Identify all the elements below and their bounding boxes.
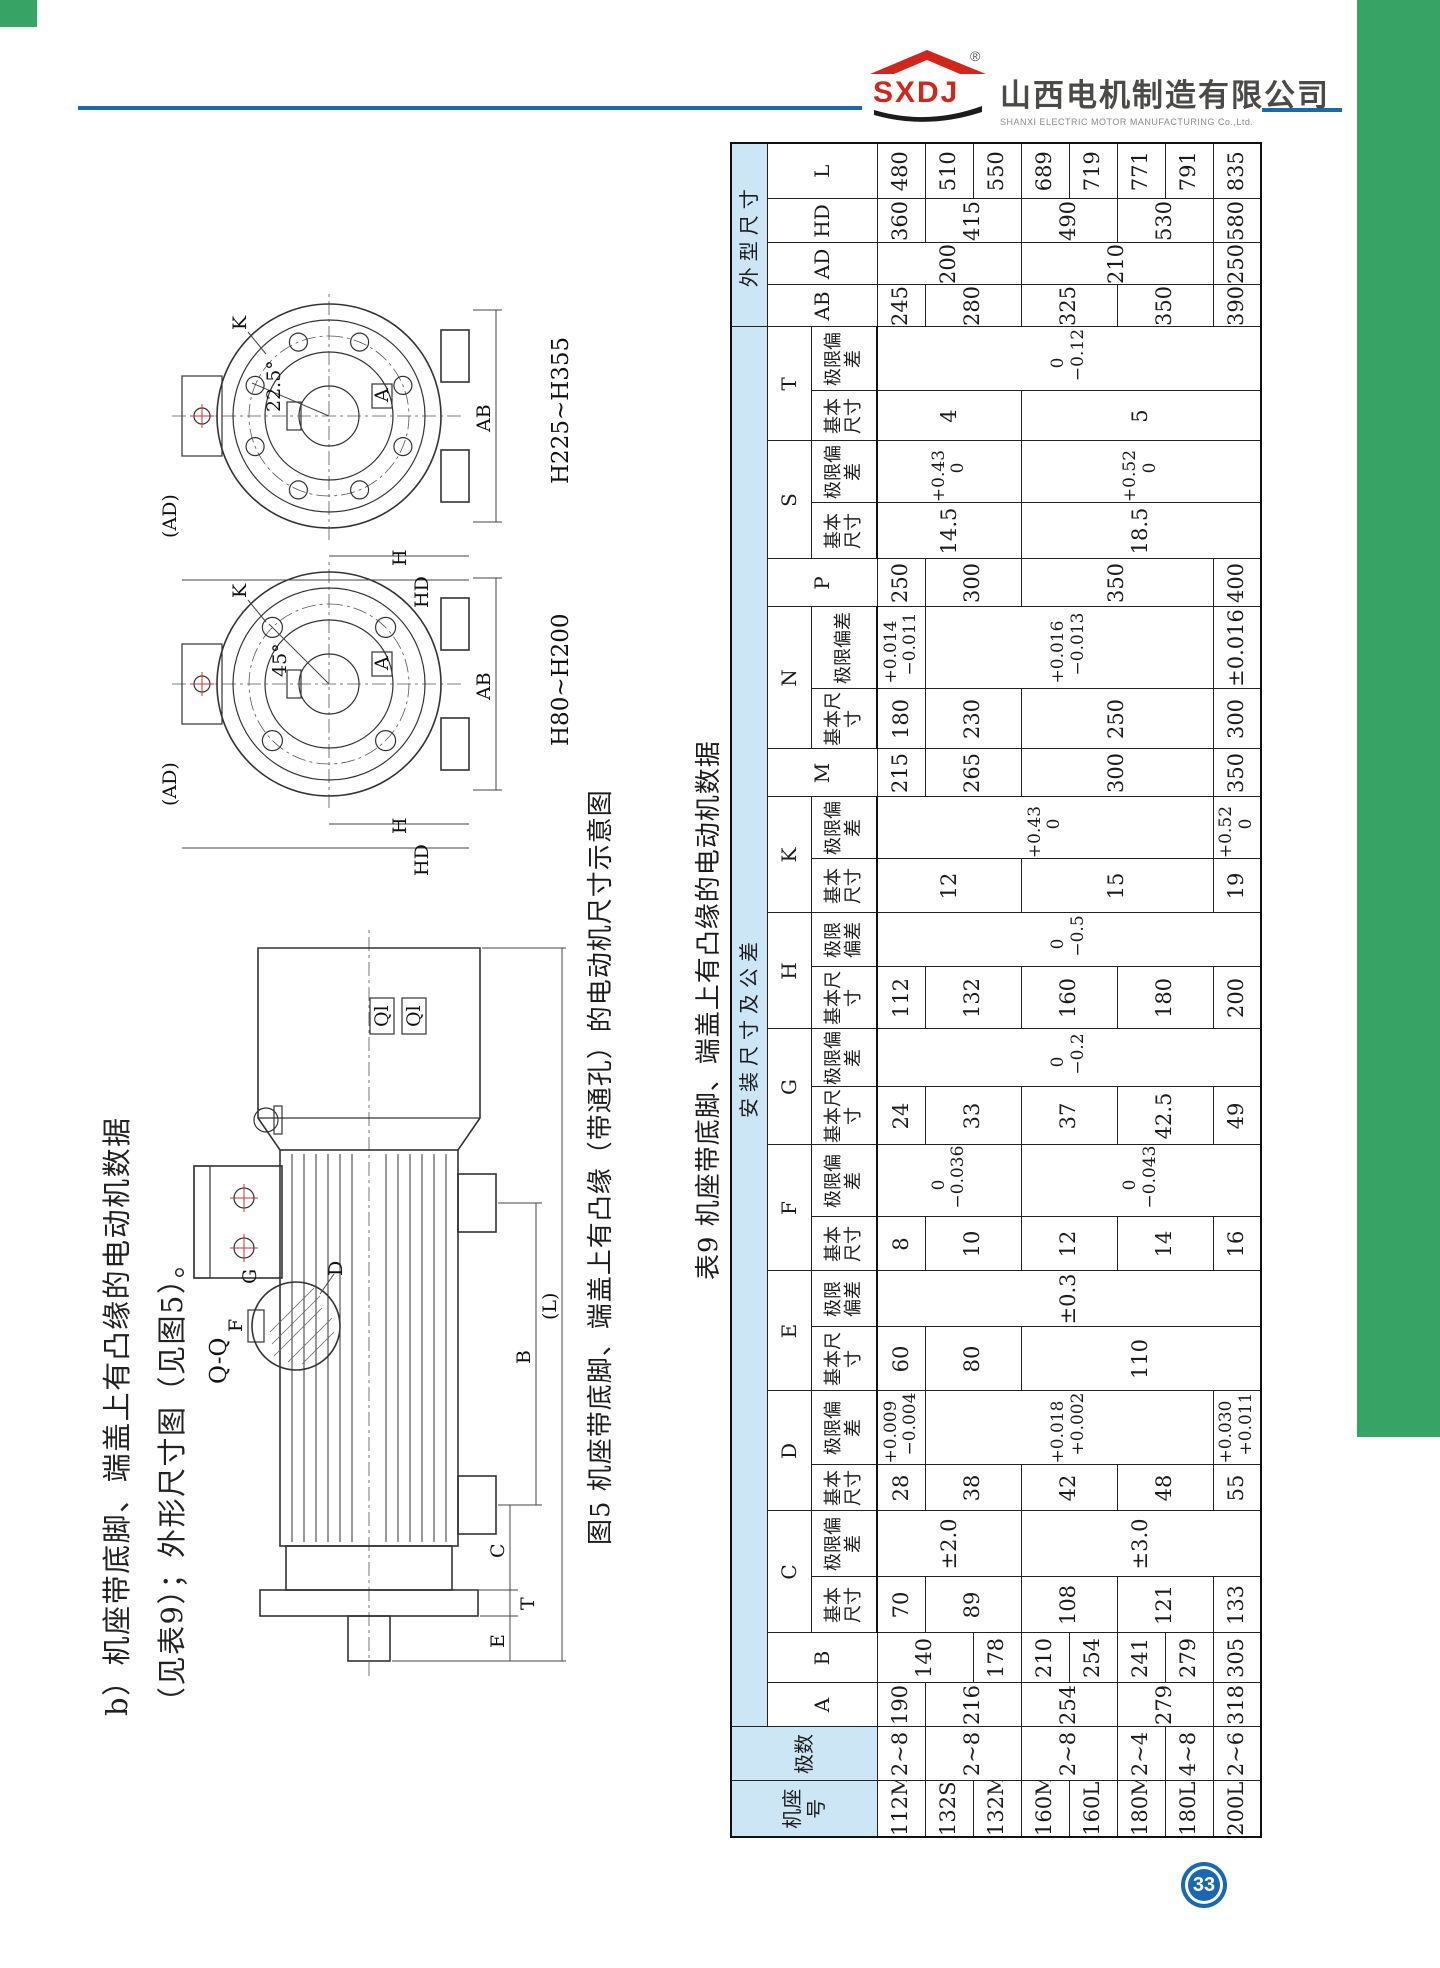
subheader-deviation-G: 极限偏差	[811, 1029, 877, 1087]
col-header-D: D	[767, 1391, 811, 1511]
col-header-F: F	[767, 1145, 811, 1271]
table-cell: 250	[1021, 689, 1213, 749]
terminal-box	[194, 1166, 282, 1278]
table-cell: 2~6	[1213, 1727, 1261, 1781]
table-cell: 55	[1213, 1465, 1261, 1511]
label-h-large: H	[389, 549, 411, 566]
table-cell: 0−0.12	[877, 327, 1261, 391]
table-cell: ±2.0	[877, 1511, 1021, 1577]
table-cell: +0.030+0.011	[1213, 1391, 1261, 1465]
subheader-basic-G: 基本尺寸	[811, 1087, 877, 1145]
table-cell: 318	[1213, 1683, 1261, 1727]
label-ad-large: (AD)	[159, 494, 181, 538]
col-header-S: S	[767, 441, 811, 559]
table-cell: 89	[925, 1577, 1021, 1633]
table-cell: 24	[877, 1087, 925, 1145]
label-l: (L)	[539, 1293, 561, 1320]
table-cell: 400	[1213, 559, 1261, 607]
table-cell: 279	[1165, 1633, 1213, 1683]
table-cell: 108	[1021, 1577, 1117, 1633]
label-ab-large: AB	[473, 404, 495, 433]
table-cell: 180	[877, 689, 925, 749]
label-k-large: K	[229, 315, 251, 330]
table-cell: 305	[1213, 1633, 1261, 1683]
table-cell: 360	[877, 199, 925, 243]
table-cell: 2~8	[877, 1727, 925, 1781]
table-cell: 300	[1213, 689, 1261, 749]
table-cell: 510	[925, 143, 973, 199]
table-cell: 530	[1117, 199, 1213, 243]
col-header-K: K	[767, 797, 811, 913]
table-cell: +0.009−0.004	[877, 1391, 925, 1465]
table-cell: 550	[973, 143, 1021, 199]
table-cell: 350	[1213, 749, 1261, 797]
table-cell: 140	[877, 1633, 973, 1683]
table-cell: 689	[1021, 143, 1069, 199]
subheader-basic-C: 基本尺寸	[811, 1577, 877, 1633]
rotated-content: b）机座带底脚、端盖上有凸缘的电动机数据（见表9）；外形尺寸图（见图5）。	[88, 116, 1338, 1856]
subheader-deviation-N: 极限偏差	[811, 607, 877, 689]
label-g: G	[239, 1269, 261, 1284]
col-header-B: B	[767, 1633, 877, 1683]
table-cell: +0.018+0.002	[925, 1391, 1213, 1465]
label-ad-small: (AD)	[159, 762, 181, 806]
label-ab-small: AB	[473, 672, 495, 701]
table-cell: 180L	[1165, 1781, 1213, 1837]
table-cell: ±0.016	[1213, 607, 1261, 689]
table-cell: 133	[1213, 1577, 1261, 1633]
table-cell: 2~4	[1117, 1727, 1165, 1781]
table-cell: ±0.3	[877, 1271, 1261, 1327]
col-header-T: T	[767, 327, 811, 441]
subheader-deviation-D: 极限偏差	[811, 1391, 877, 1465]
table-cell: 42.5	[1117, 1087, 1213, 1145]
page-number-badge: 33	[1181, 1862, 1227, 1908]
table-cell: 254	[1069, 1633, 1117, 1683]
col-header-HD: HD	[767, 199, 877, 243]
table-cell: 415	[925, 199, 1021, 243]
registered-mark: ®	[970, 48, 980, 64]
label-d: D	[325, 1261, 347, 1276]
table-cell: 350	[1117, 285, 1213, 327]
figure5-caption: 图5 机座带底脚、端盖上有凸缘（带通孔）的电动机尺寸示意图	[580, 789, 617, 1545]
motor-front-view-small: 45° (AD) K A H HD AB H80~H200	[159, 560, 574, 876]
label-b: B	[513, 1350, 535, 1364]
table-cell: 132	[925, 967, 1021, 1029]
table9-title: 表9 机座带底脚、端盖上有凸缘的电动机数据	[688, 740, 725, 1280]
subheader-deviation-C: 极限偏差	[811, 1511, 877, 1577]
table-cell: 230	[925, 689, 1021, 749]
table-cell: 4~8	[1165, 1727, 1213, 1781]
green-corner-block	[0, 0, 37, 27]
table-cell: 190	[877, 1683, 925, 1727]
label-h-small: H	[389, 817, 411, 834]
label-angle-225: 22.5°	[263, 360, 285, 412]
catalog-page: SXDJ ® 山西电机制造有限公司 SHANXI ELECTRIC MOTOR …	[0, 0, 1440, 1968]
table-cell: 210	[1021, 1633, 1069, 1683]
front-view-large-range: H225~H355	[548, 337, 574, 484]
subheader-deviation-F: 极限偏差	[811, 1145, 877, 1217]
label-a-small: A	[371, 656, 393, 671]
subheader-deviation-T: 极限偏差	[811, 327, 877, 391]
table-cell: 160M	[1021, 1781, 1069, 1837]
label-f: F	[225, 1319, 247, 1332]
table-cell: 719	[1069, 143, 1117, 199]
table-cell: +0.016−0.013	[925, 607, 1213, 689]
label-hd-small: HD	[411, 844, 433, 876]
table-cell: 14	[1117, 1217, 1213, 1271]
table-cell: 216	[925, 1683, 1021, 1727]
table-cell: 2~8	[1021, 1727, 1117, 1781]
table-cell: 5	[1021, 391, 1261, 441]
page-number: 33	[1188, 1869, 1220, 1901]
col-header-P: P	[767, 559, 877, 607]
table-cell: 10	[925, 1217, 1021, 1271]
label-k-small: K	[229, 583, 251, 598]
group-header-overall: 外型尺寸	[731, 143, 767, 327]
table-cell: 132M	[973, 1781, 1021, 1837]
col-header-AB: AB	[767, 285, 877, 327]
table-cell: 250	[1213, 243, 1261, 285]
front-view-small-range: H80~H200	[548, 613, 574, 746]
label-c: C	[487, 1543, 509, 1558]
table-cell: 12	[1021, 1217, 1117, 1271]
table-cell: 48	[1117, 1465, 1213, 1511]
col-header-H: H	[767, 913, 811, 1029]
table-cell: 771	[1117, 143, 1165, 199]
table-cell: 200	[877, 243, 1021, 285]
subheader-basic-H: 基本尺寸	[811, 967, 877, 1029]
table-cell: 280	[925, 285, 1021, 327]
subheader-deviation-S: 极限偏差	[811, 441, 877, 503]
label-e: E	[487, 1634, 509, 1648]
col-header-L: L	[767, 143, 877, 199]
motor-side-view: Ql Ql E T C B (L)	[194, 928, 566, 1676]
table9: 机座号极数安装尺寸及公差外型尺寸ABCDEFGHKMNPSTABADHDL基本尺…	[730, 142, 1262, 1838]
subheader-deviation-H: 极限偏差	[811, 913, 877, 967]
table-cell: 390	[1213, 285, 1261, 327]
table-cell: 112M	[877, 1781, 925, 1837]
table-cell: +0.014−0.011	[877, 607, 925, 689]
table-cell: 8	[877, 1217, 925, 1271]
subheader-deviation-E: 极限偏差	[811, 1271, 877, 1327]
table-cell: 350	[1021, 559, 1213, 607]
table-cell: 160L	[1069, 1781, 1117, 1837]
company-name-cn: 山西电机制造有限公司	[1000, 70, 1330, 115]
col-header-poles: 极数	[731, 1727, 877, 1781]
table-cell: 121	[1117, 1577, 1213, 1633]
table-cell: 245	[877, 285, 925, 327]
label-ql-2: Ql	[403, 1005, 425, 1027]
table-cell: +0.520	[1021, 441, 1261, 503]
table-cell: 200L	[1213, 1781, 1261, 1837]
table-cell: 14.5	[877, 503, 1021, 559]
subheader-deviation-K: 极限偏差	[811, 797, 877, 859]
table-cell: 215	[877, 749, 925, 797]
table-cell: 250	[877, 559, 925, 607]
header-rule-left	[78, 106, 862, 110]
table-cell: +0.430	[877, 797, 1213, 859]
table-cell: 0−0.2	[877, 1029, 1261, 1087]
table-cell: 15	[1021, 859, 1213, 913]
table-cell: 4	[877, 391, 1021, 441]
table-cell: 180M	[1117, 1781, 1165, 1837]
table-cell: 38	[925, 1465, 1021, 1511]
table-cell: 0−0.5	[877, 913, 1261, 967]
figure5-drawings: Ql Ql E T C B (L) Q-Q	[144, 256, 574, 1676]
table-cell: 112	[877, 967, 925, 1029]
subheader-basic-S: 基本尺寸	[811, 503, 877, 559]
subheader-basic-N: 基本尺寸	[811, 689, 877, 749]
table-cell: 300	[1021, 749, 1213, 797]
table-cell: 70	[877, 1577, 925, 1633]
table-cell: 200	[1213, 967, 1261, 1029]
table-cell: 28	[877, 1465, 925, 1511]
table-cell: 132S	[925, 1781, 973, 1837]
table-cell: 12	[877, 859, 1021, 913]
table-cell: 835	[1213, 143, 1261, 199]
section-view-qq: Q-Q F G D	[206, 1261, 347, 1384]
table-cell: 18.5	[1021, 503, 1261, 559]
table-cell: +0.520	[1213, 797, 1261, 859]
table-cell: 178	[973, 1633, 1021, 1683]
table-cell: 580	[1213, 199, 1261, 243]
table-cell: 180	[1117, 967, 1213, 1029]
motor-front-view-large: 22.5° (AD) K A H HD AB H225~H355	[159, 292, 574, 608]
label-hd-large: HD	[411, 576, 433, 608]
subheader-basic-D: 基本尺寸	[811, 1465, 877, 1511]
table-cell: 33	[925, 1087, 1021, 1145]
table-cell: 49	[1213, 1087, 1261, 1145]
label-qq: Q-Q	[206, 1338, 232, 1384]
label-angle-45: 45°	[269, 643, 291, 677]
table-cell: 791	[1165, 143, 1213, 199]
logo-text: SXDJ	[873, 76, 959, 109]
table-cell: 265	[925, 749, 1021, 797]
table-cell: 279	[1117, 1683, 1213, 1727]
table-cell: 0−0.036	[877, 1145, 1021, 1217]
table-cell: 325	[1021, 285, 1117, 327]
green-side-band	[1357, 0, 1440, 1437]
col-header-N: N	[767, 607, 811, 749]
table-row: 160M2~8254210108±3.042110120−0.043371601…	[1021, 143, 1069, 1837]
col-header-A: A	[767, 1683, 877, 1727]
table-cell: 16	[1213, 1217, 1261, 1271]
group-header-mount: 安装尺寸及公差	[731, 327, 767, 1727]
table-cell: +0.430	[877, 441, 1021, 503]
table-cell: 300	[925, 559, 1021, 607]
table-cell: 110	[1021, 1327, 1261, 1391]
subheader-basic-K: 基本尺寸	[811, 859, 877, 913]
table-cell: 480	[877, 143, 925, 199]
label-t: T	[517, 1597, 539, 1610]
col-header-C: C	[767, 1511, 811, 1633]
table-cell: 2~8	[925, 1727, 1021, 1781]
label-a-large: A	[371, 388, 393, 403]
subheader-basic-T: 基本尺寸	[811, 391, 877, 441]
table-cell: 0−0.043	[1021, 1145, 1261, 1217]
table-cell: 37	[1021, 1087, 1117, 1145]
table-cell: 42	[1021, 1465, 1117, 1511]
table-cell: 210	[1021, 243, 1213, 285]
label-ql-1: Ql	[371, 1005, 393, 1027]
table-cell: 160	[1021, 967, 1117, 1029]
table-row: 112M2~819014070±2.028+0.009−0.00460±0.38…	[877, 143, 925, 1837]
col-header-frame: 机座号	[731, 1781, 877, 1837]
table-cell: 19	[1213, 859, 1261, 913]
col-header-G: G	[767, 1029, 811, 1145]
subheader-basic-F: 基本尺寸	[811, 1217, 877, 1271]
col-header-AD: AD	[767, 243, 877, 285]
table-cell: 60	[877, 1327, 925, 1391]
col-header-M: M	[767, 749, 877, 797]
table-cell: 241	[1117, 1633, 1165, 1683]
col-header-E: E	[767, 1271, 811, 1391]
table-cell: ±3.0	[1021, 1511, 1261, 1577]
table-cell: 80	[925, 1327, 1021, 1391]
subheader-basic-E: 基本尺寸	[811, 1327, 877, 1391]
table-cell: 490	[1021, 199, 1117, 243]
table-cell: 254	[1021, 1683, 1117, 1727]
